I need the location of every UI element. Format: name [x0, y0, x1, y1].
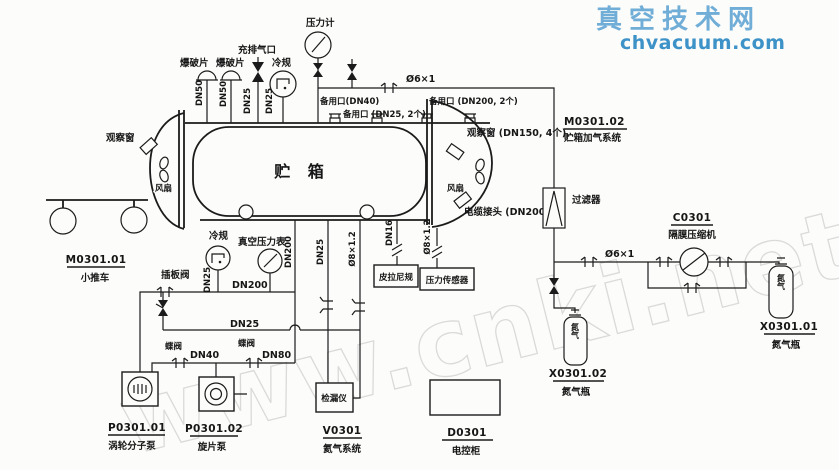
pipe-top-network	[207, 58, 554, 262]
compressor-id-label: C0301	[673, 212, 711, 224]
cart-wheel	[121, 207, 147, 233]
cold-gauge-lower-label: 冷规	[209, 230, 229, 242]
control-cabinet-name-label: 电控柜	[452, 445, 481, 457]
pressure-gauge-label: 压力计	[306, 17, 335, 29]
rotary-pump-name-label: 旋片泵	[197, 441, 227, 453]
dn25-tap-label: DN25	[316, 239, 326, 265]
manifold-dn200-label: DN200	[232, 280, 268, 291]
helium-system-name-label: 氦气系统	[323, 443, 362, 455]
bottle-left-gas-label: 氮气	[571, 322, 580, 340]
observation-window-left-label: 观察窗	[105, 132, 135, 144]
bottle-left-name-label: 氮气瓶	[562, 386, 591, 398]
vacuum-system-diagram: www.cnki.net 贮 箱 观察窗 风扇 观察窗 (DN150, 4个) …	[0, 0, 839, 470]
spare-port-dn200-label: 备用口 (DN200, 2个)	[428, 96, 518, 107]
dn40-label: DN40	[190, 350, 219, 361]
pirani-gauge-label: 皮拉尼规	[378, 272, 414, 283]
rupture-disc-label-2: 爆破片	[216, 57, 245, 69]
control-cabinet-box	[430, 380, 500, 415]
helium-system-id-label: V0301	[323, 425, 362, 437]
cart-id-label: M0301.01	[66, 254, 127, 266]
fan-icon-right	[474, 158, 485, 185]
dn80-label: DN80	[262, 350, 291, 361]
valve-icon-roughing-branch	[156, 300, 168, 316]
cold-gauge-dn25-label: DN25	[203, 267, 213, 293]
site-watermark-name: 真空技术网	[596, 4, 761, 35]
pressure-transducer-label: 压力传感器	[426, 275, 469, 286]
dn16-tap-label: DN16	[385, 220, 395, 246]
diagram-canvas: www.cnki.net 贮 箱 观察窗 风扇 观察窗 (DN150, 4个) …	[0, 0, 839, 470]
turbo-pump-id-label: P0301.01	[108, 422, 166, 434]
observation-window-right-label: 观察窗 (DN150, 4个)	[466, 127, 566, 139]
cart-wheel	[50, 208, 76, 234]
spare-port-dn40-label: 备用口(DN40)	[319, 96, 379, 107]
dn50-label-2: DN50	[219, 81, 229, 107]
gas-system-name-label: 贮箱加气系统	[563, 132, 622, 144]
control-cabinet-id-label: D0301	[447, 427, 486, 439]
cold-gauge-icon-lower	[206, 246, 230, 270]
filter-icon	[543, 188, 565, 228]
vacuum-gauge-icon	[258, 249, 282, 273]
butterfly-valve-label-1: 蝶阀	[165, 341, 182, 352]
d8x12-tap-label-b: Ø8×1.2	[422, 219, 433, 254]
filter-label: 过滤器	[572, 194, 601, 206]
rupture-disc-label-1: 爆破片	[180, 57, 209, 69]
compressor-name-label: 隔膜压缩机	[668, 229, 716, 241]
fan-icon-left	[158, 156, 169, 183]
tank-name-label: 贮 箱	[273, 162, 330, 181]
coupling-icon-dn25-tap	[320, 297, 333, 313]
bottle-left-id-label: X0301.02	[549, 368, 607, 380]
bottle-right-id-label: X0301.01	[760, 321, 818, 333]
gas-system-id-label: M0301.02	[564, 116, 625, 128]
fan-left-label: 风扇	[155, 183, 172, 194]
dn25-label-1: DN25	[243, 88, 253, 114]
coupling-icon-transducer-angled	[432, 246, 442, 258]
spare-port-dn25-label: 备用口 (DN25, 2个)	[342, 109, 426, 120]
cable-connector-label: 电缆接头 (DN200)	[464, 206, 550, 218]
leak-detector-label: 检漏仪	[321, 393, 347, 404]
pressure-gauge-icon	[305, 32, 331, 58]
roughing-dn25-label: DN25	[230, 319, 259, 330]
dn50-label-1: DN50	[195, 80, 205, 106]
tank-support-roller	[360, 205, 374, 219]
rotary-pump-icon	[199, 377, 234, 411]
valve-icon-gas-line	[347, 59, 357, 80]
valve-icon-pressure-gauge	[313, 63, 323, 77]
bottle-right-name-label: 氮气瓶	[772, 339, 801, 351]
gate-valve-label: 插板阀	[161, 269, 190, 281]
vacuum-gauge-label: 真空压力表	[238, 236, 286, 248]
turbo-pump-icon	[122, 372, 158, 406]
rupture-disc-icon-1	[196, 71, 218, 80]
pipe-size-label-compressor: Ø6×1	[605, 249, 634, 260]
cart-icon	[46, 200, 148, 234]
d8x12-tap-label-a: Ø8×1.2	[347, 231, 358, 266]
cart-name-label: 小推车	[80, 272, 110, 284]
rupture-disc-icon-2	[220, 71, 242, 80]
site-watermark-url: chvacuum.com	[620, 32, 785, 54]
tank-support-roller	[239, 205, 253, 219]
pipe-size-label-top: Ø6×1	[406, 74, 435, 85]
fan-right-label: 风扇	[447, 183, 464, 194]
valve-icon-fill-port	[252, 57, 264, 82]
fill-exhaust-port-label: 充排气口	[238, 44, 276, 56]
bottle-right-gas-label: 氮气	[777, 273, 786, 291]
cold-gauge-top-label: 冷规	[272, 57, 292, 69]
dn25-label-2: DN25	[265, 88, 275, 114]
butterfly-valve-label-2: 蝶阀	[238, 338, 255, 349]
cable-connector-port-icon	[454, 192, 471, 208]
turbo-pump-name-label: 涡轮分子泵	[108, 440, 156, 452]
observation-port-icon-right	[446, 144, 463, 160]
rotary-pump-id-label: P0301.02	[185, 423, 243, 435]
compressor-icon	[680, 248, 708, 276]
